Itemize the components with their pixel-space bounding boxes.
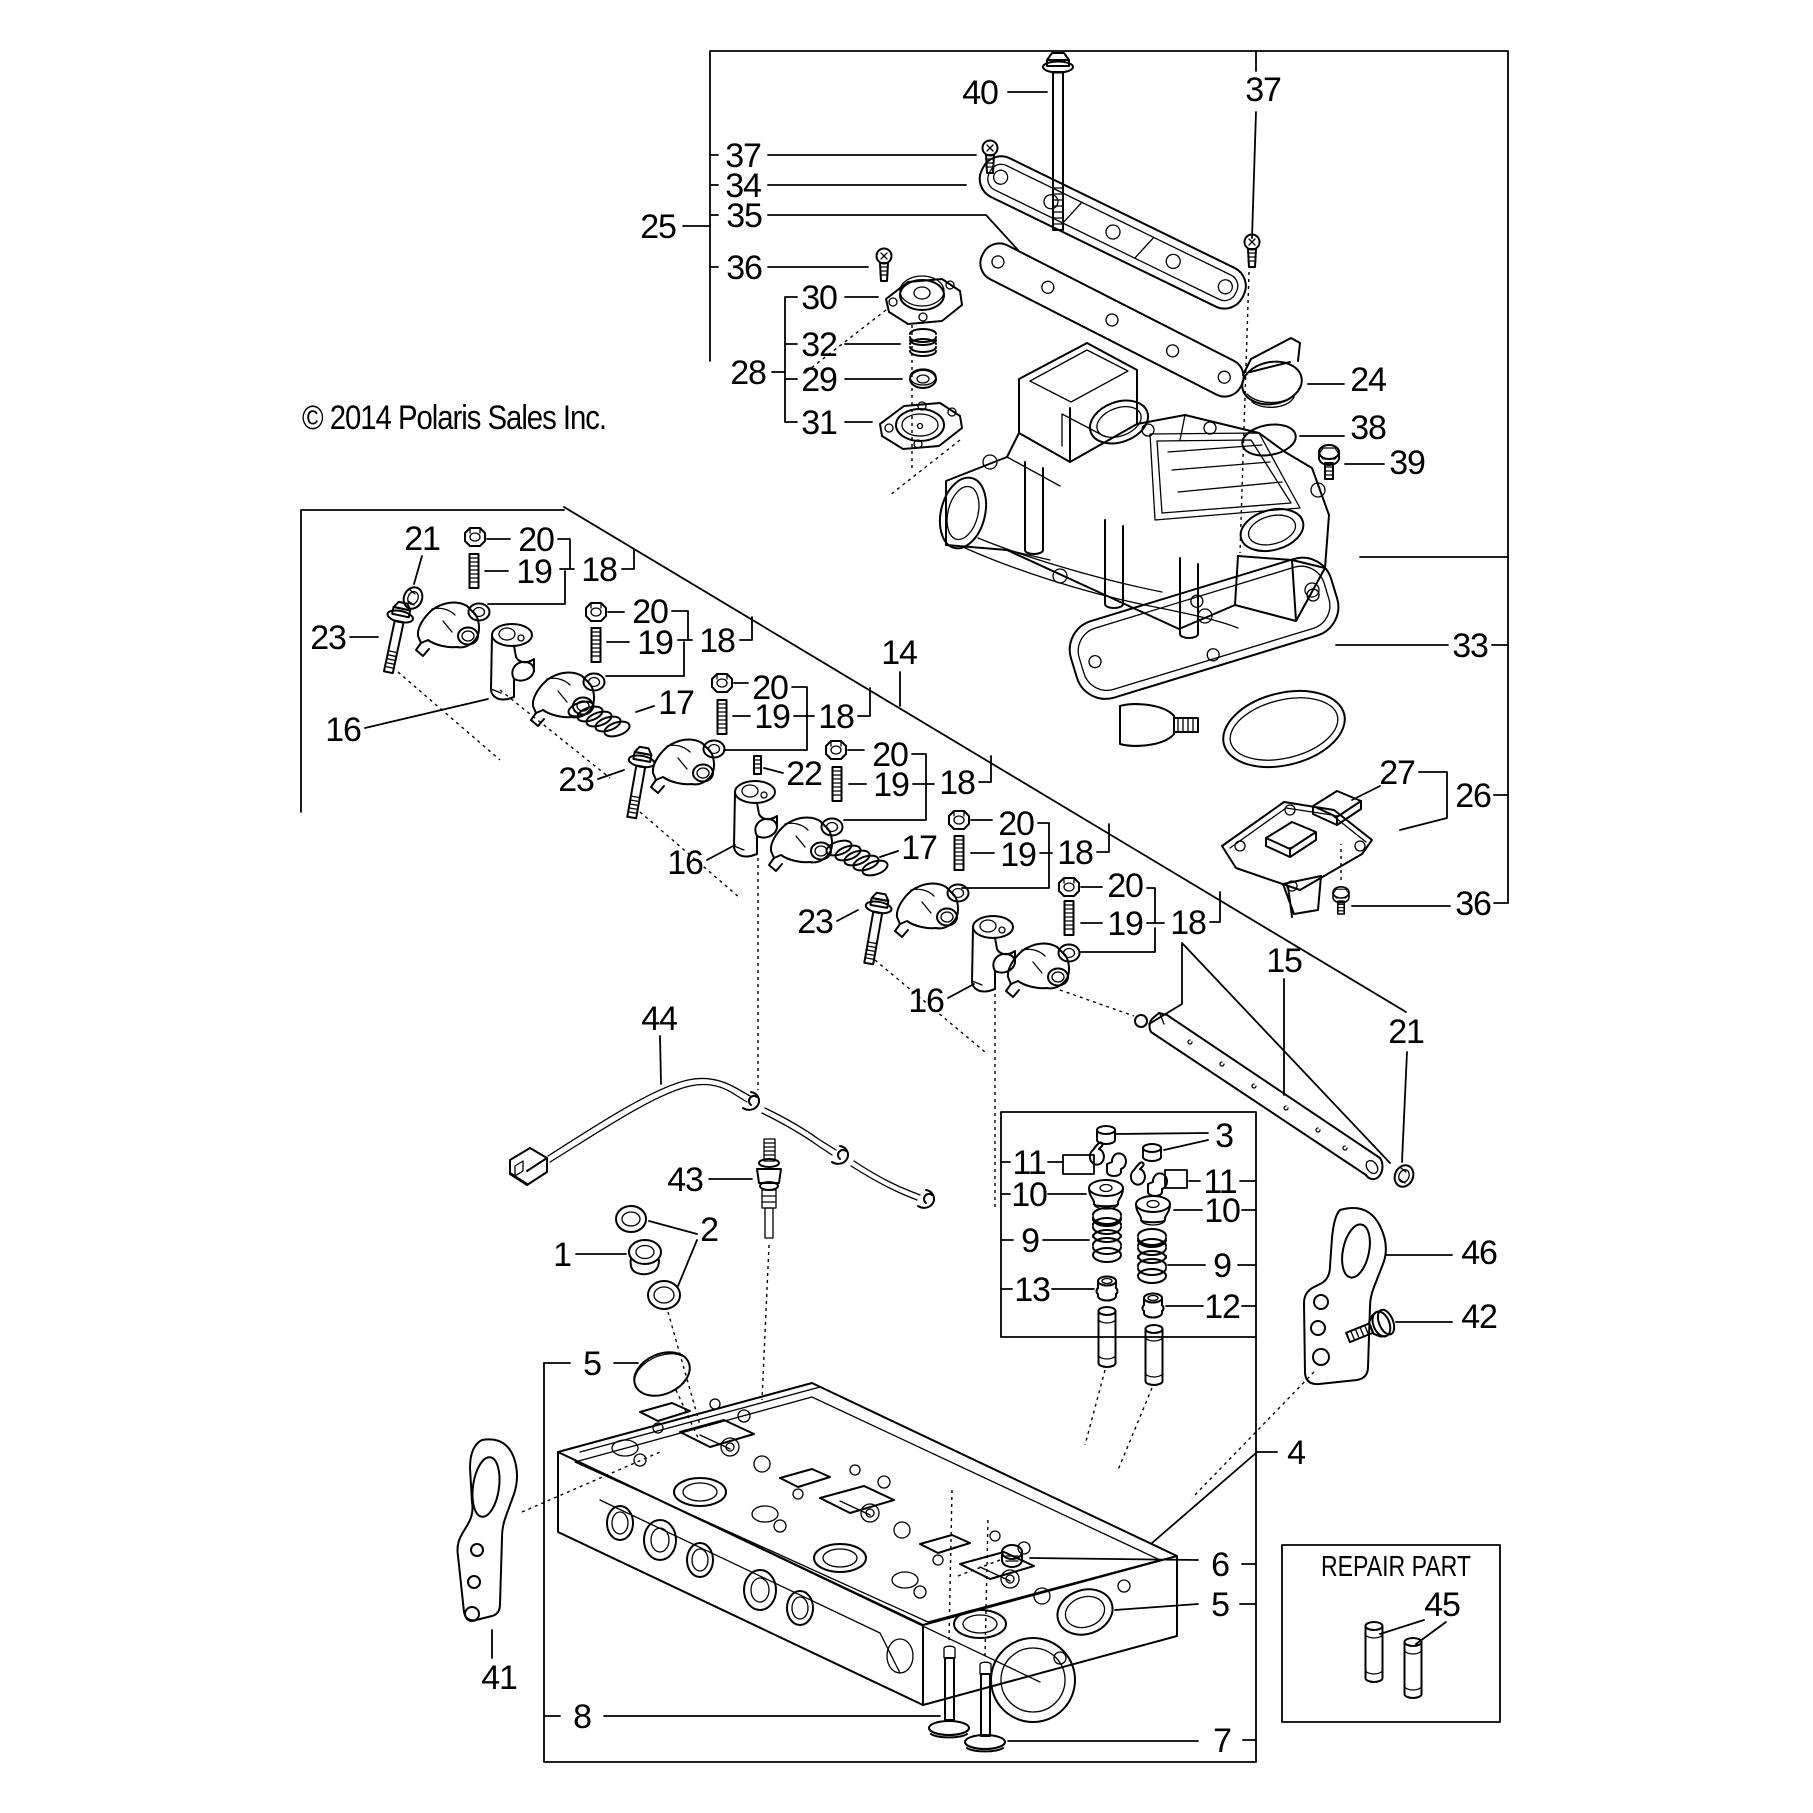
svg-text:13: 13: [1014, 1271, 1050, 1309]
svg-text:35: 35: [726, 197, 762, 235]
svg-text:33: 33: [1452, 627, 1488, 665]
svg-text:14: 14: [881, 634, 917, 672]
svg-text:5: 5: [583, 1345, 601, 1383]
svg-text:39: 39: [1389, 444, 1425, 482]
svg-text:9: 9: [1213, 1247, 1231, 1285]
svg-text:17: 17: [658, 684, 694, 722]
svg-text:© 2014 Polaris Sales Inc.: © 2014 Polaris Sales Inc.: [302, 399, 606, 437]
svg-text:41: 41: [481, 1659, 517, 1697]
svg-text:16: 16: [667, 844, 703, 882]
svg-text:37: 37: [1245, 71, 1281, 109]
svg-text:36: 36: [1455, 885, 1491, 923]
svg-text:3: 3: [1215, 1117, 1233, 1155]
svg-text:12: 12: [1204, 1288, 1240, 1326]
svg-text:1: 1: [553, 1236, 571, 1274]
svg-text:25: 25: [640, 208, 676, 246]
svg-text:18: 18: [699, 622, 735, 660]
svg-text:9: 9: [1021, 1222, 1039, 1260]
svg-text:44: 44: [641, 1000, 677, 1038]
svg-text:40: 40: [962, 74, 998, 112]
svg-text:30: 30: [801, 279, 837, 317]
svg-text:32: 32: [801, 326, 837, 364]
svg-text:31: 31: [801, 404, 837, 442]
svg-text:7: 7: [1213, 1722, 1231, 1760]
svg-text:23: 23: [797, 903, 833, 941]
svg-text:29: 29: [801, 361, 837, 399]
svg-text:17: 17: [901, 829, 937, 867]
svg-text:5: 5: [1211, 1586, 1229, 1624]
svg-text:15: 15: [1266, 942, 1302, 980]
svg-text:19: 19: [754, 698, 790, 736]
svg-text:16: 16: [325, 711, 361, 749]
svg-text:10: 10: [1011, 1176, 1047, 1214]
svg-text:43: 43: [667, 1161, 703, 1199]
svg-text:16: 16: [908, 982, 944, 1020]
svg-text:21: 21: [404, 520, 440, 558]
svg-text:26: 26: [1455, 777, 1491, 815]
svg-text:18: 18: [1170, 904, 1206, 942]
svg-text:19: 19: [873, 766, 909, 804]
svg-text:46: 46: [1461, 1234, 1497, 1272]
svg-text:19: 19: [637, 624, 673, 662]
svg-text:18: 18: [818, 698, 854, 736]
svg-text:6: 6: [1211, 1546, 1229, 1584]
svg-text:18: 18: [939, 764, 975, 802]
svg-text:38: 38: [1350, 409, 1386, 447]
svg-text:23: 23: [310, 619, 346, 657]
svg-text:10: 10: [1204, 1192, 1240, 1230]
svg-text:45: 45: [1424, 1586, 1460, 1624]
svg-text:21: 21: [1388, 1013, 1424, 1051]
svg-text:19: 19: [1000, 836, 1036, 874]
svg-text:18: 18: [1057, 834, 1093, 872]
svg-text:27: 27: [1379, 754, 1415, 792]
svg-text:42: 42: [1461, 1298, 1497, 1336]
svg-text:19: 19: [1107, 905, 1143, 943]
svg-text:36: 36: [726, 249, 762, 287]
svg-text:23: 23: [558, 761, 594, 799]
svg-text:8: 8: [573, 1698, 591, 1736]
svg-text:2: 2: [700, 1211, 718, 1249]
svg-text:28: 28: [730, 354, 766, 392]
svg-text:19: 19: [516, 553, 552, 591]
svg-text:24: 24: [1350, 361, 1386, 399]
svg-text:18: 18: [581, 551, 617, 589]
svg-text:4: 4: [1287, 1434, 1305, 1472]
svg-text:20: 20: [1107, 867, 1143, 905]
svg-text:REPAIR PART: REPAIR PART: [1321, 1551, 1471, 1583]
svg-text:22: 22: [786, 755, 822, 793]
